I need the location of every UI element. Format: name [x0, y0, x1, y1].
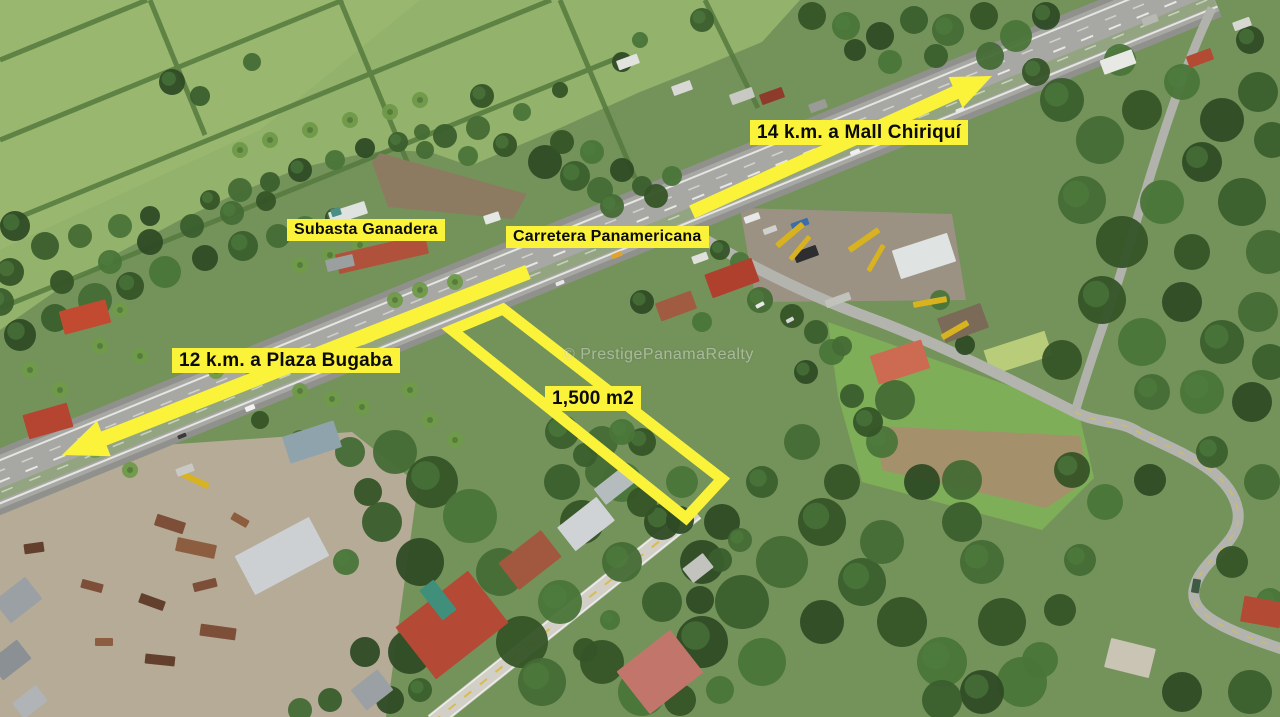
label-parcel-area: 1,500 m2 — [545, 386, 641, 411]
label-highway: Carretera Panamericana — [506, 226, 709, 248]
watermark: © PrestigePanamaRealty — [563, 346, 754, 364]
label-distance-southwest: 12 k.m. a Plaza Bugaba — [172, 348, 400, 373]
label-distance-northeast: 14 k.m. a Mall Chiriquí — [750, 120, 968, 145]
aerial-photo: 14 k.m. a Mall Chiriquí Subasta Ganadera… — [0, 0, 1280, 717]
label-landmark: Subasta Ganadera — [287, 219, 445, 241]
